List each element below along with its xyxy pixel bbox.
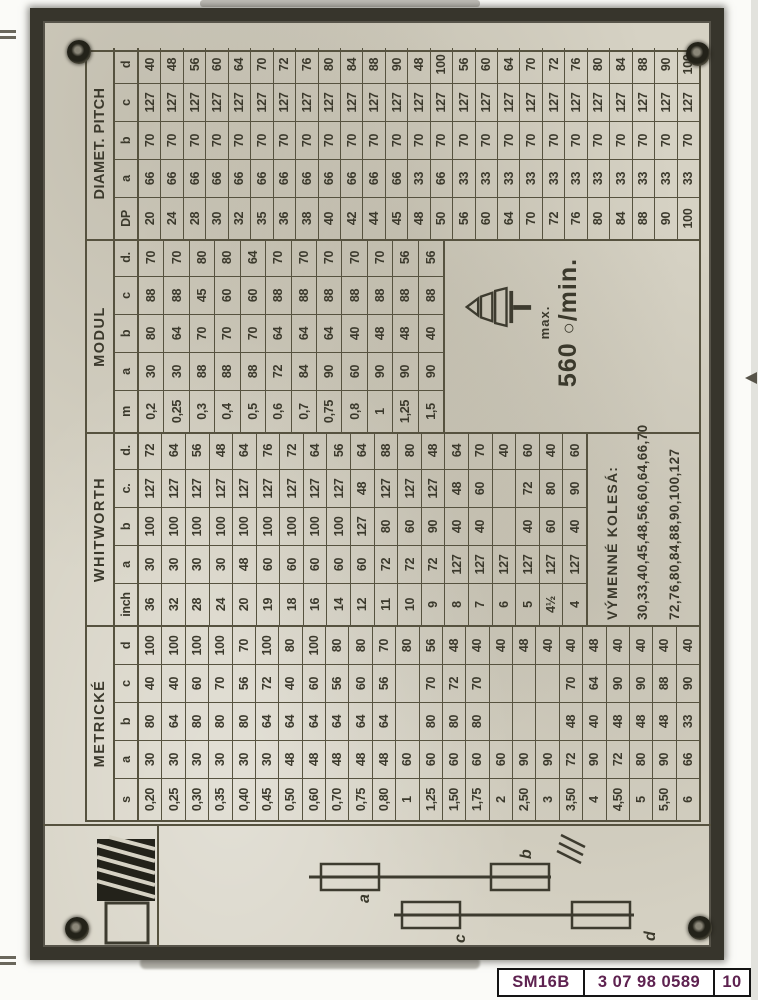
table-cell: 80 [396,627,418,665]
table-cell: 80 [398,432,421,470]
table-cell: 66 [341,160,362,198]
table-cell: 60 [241,277,265,315]
table-cell: 66 [184,160,205,198]
table-cell: 90 [563,470,586,508]
table-cell: 70 [431,122,452,160]
table-cell: 70 [453,122,474,160]
table-cell: 4½ [540,584,563,625]
table-cell: 127 [476,84,497,122]
table-cell: 48 [408,46,429,84]
table-cell: 80 [190,239,214,277]
table-cell: 66 [139,160,160,198]
table-row: 0,5048644080 [278,627,301,820]
table-cell: 42 [341,198,362,239]
max-speed-label: max. [537,241,552,404]
page-number: 10 [713,970,749,995]
table-cell: 127 [363,84,384,122]
table-cell: 1,5 [419,391,443,432]
table-row: 70337012770 [519,48,541,239]
table-cell: 0,60 [303,779,325,820]
table-cell: 0,80 [373,779,395,820]
table-cell: 70 [655,122,676,160]
table-row: 12601274864 [350,434,374,625]
table-cell: 70 [319,122,340,160]
table-cell: 70 [209,665,231,703]
table-cell: 88 [368,277,392,315]
table-row: 26040 [489,627,512,820]
table-cell: 33 [453,160,474,198]
table-cell: 70 [241,315,265,353]
catalog-id-box: SM16B 3 07 98 0589 10 [497,968,751,997]
table-row: 243010012748 [209,434,233,625]
table-cell: 48 [393,315,417,353]
max-speed-note: max. 560 ○/min. [445,241,583,432]
table-cell: 100 [304,508,327,546]
table-cell: 11 [375,584,398,625]
table-cell: 88 [139,277,163,315]
table-cell: 30 [210,546,233,584]
table-cell: 48 [445,470,468,508]
table-cell: 60 [342,353,366,391]
table-cell: 10 [398,584,421,625]
table-cell: 100 [280,508,303,546]
table-cell: 45 [190,277,214,315]
table-row: 1,5060807248 [442,627,465,820]
table-cell: 88 [164,277,188,315]
table-cell: 36 [139,584,162,625]
table-cell: 64 [241,239,265,277]
table-row: 35667012770 [250,48,272,239]
column-label: d [115,627,137,665]
table-cell: 60 [443,741,465,779]
column-label: c [115,277,137,315]
corner-screw-icon [65,917,89,941]
table-cell: 60 [327,546,350,584]
table-cell: 80 [630,741,652,779]
table-cell: 40 [139,665,161,703]
table-cell: 127 [431,84,452,122]
table-cell: 64 [304,432,327,470]
table-cell: 0,6 [266,391,290,432]
table-row: 9729012748 [421,434,445,625]
table-cell: 80 [186,703,208,741]
table-cell: 72 [139,432,162,470]
table-cell: 56 [453,46,474,84]
table-cell: 70 [266,239,290,277]
section-title: DIAMET. PITCH [87,48,115,239]
table-cell: 127 [540,546,563,584]
table-cell: 127 [257,470,280,508]
table-cell: 20 [139,198,160,239]
table-cell: 40 [540,432,563,470]
table-cell: 30 [162,741,184,779]
table-row: 186010012772 [279,434,303,625]
table-row: 3,5072487040 [559,627,582,820]
table-cell: 84 [292,353,316,391]
table-row: 0,7590648870 [316,241,341,432]
table-cell: 88 [633,46,654,84]
table-cell: 0,40 [233,779,255,820]
table-cell: 64 [279,703,301,741]
table-cell: 33 [498,160,519,198]
table-cell: 127 [229,84,250,122]
table-cell: 80 [420,703,442,741]
table-cell: 40 [342,315,366,353]
table-cell: 88 [342,277,366,315]
table-row: 72337012772 [542,48,564,239]
table-cell: 127 [351,508,374,546]
column-labels: sabcd [115,627,139,820]
table-cell: 1 [396,779,418,820]
table-cell: 64 [445,432,468,470]
table-cell: 14 [327,584,350,625]
table-cell: 64 [317,315,341,353]
thread-gear-table: METRICKÉ sabcd 0,203080401000,2530644010… [85,50,701,822]
table-cell: 64 [326,703,348,741]
table-cell: 48 [443,627,465,665]
table-cell: 100 [186,627,208,665]
table-row: 7127406070 [468,434,492,625]
table-cell: 0,7 [292,391,316,432]
table-cell: 127 [251,84,272,122]
table-cell: 1,25 [393,391,417,432]
table-cell: 70 [469,432,492,470]
table-row: 0,60486460100 [302,627,325,820]
column-labels: DPabcd [115,48,139,239]
table-cell: 60 [563,432,586,470]
table-cell: 56 [453,198,474,239]
table-cell: 60 [398,508,421,546]
table-cell: 80 [319,46,340,84]
table-cell: 48 [653,703,675,741]
table-cell: 48 [279,741,301,779]
table-cell [513,665,535,703]
table-cell: 33 [677,703,699,741]
gear-train-diagram: a b c d [159,826,709,947]
section-rows: 3630100127723230100127642830100127562430… [139,434,588,625]
table-cell: 64 [498,46,519,84]
table-row: 4½127608040 [539,434,563,625]
table-cell: 70 [476,122,497,160]
table-row: 323010012764 [161,434,185,625]
gear-change-table-plate: a b c d METRICKÉ sabcd 0,203080401000,25… [30,8,724,960]
table-cell: 88 [317,277,341,315]
table-cell: 3,50 [560,779,582,820]
table-cell: 72 [266,353,290,391]
table-row: 32667012764 [228,48,250,239]
section-metricke: METRICKÉ sabcd 0,203080401000,2530644010… [87,627,699,820]
table-cell: 127 [233,470,256,508]
table-cell: 66 [431,160,452,198]
table-row: 36667012772 [273,48,295,239]
table-cell: 60 [466,741,488,779]
table-cell: 70 [565,122,586,160]
table-cell [490,703,512,741]
table-row: 4127409060 [562,434,586,625]
table-cell: 80 [139,703,161,741]
table-cell: 64 [498,198,519,239]
table-row: 64337012764 [497,48,519,239]
table-cell: 72 [375,546,398,584]
column-label: c [115,665,137,703]
arrow-mark-icon [745,372,757,384]
table-row: 190488870 [367,241,392,432]
table-cell: 40 [653,627,675,665]
table-cell: 127 [655,84,676,122]
diagram-label-d: d [642,930,659,941]
table-cell [493,470,516,508]
table-cell: 76 [565,46,586,84]
table-cell: 66 [274,160,295,198]
table-cell: 16 [304,584,327,625]
table-cell: 70 [363,122,384,160]
section-diametral-pitch: DIAMET. PITCH DPabcd 2066701274024667012… [87,48,699,241]
table-cell: 33 [520,160,541,198]
table-cell: 72 [398,546,421,584]
table-row: 0,784648870 [291,241,316,432]
table-cell: 56 [420,627,442,665]
table-row: 490406448 [582,627,605,820]
table-row: 39040 [535,627,558,820]
table-row: 0,7048645680 [325,627,348,820]
table-cell: 90 [393,353,417,391]
table-row: 0,20308040100 [139,627,161,820]
table-cell: 0,70 [326,779,348,820]
table-cell: 0,75 [349,779,371,820]
table-row: 4,5072489040 [606,627,629,820]
table-row: 0,45306472100 [255,627,278,820]
table-cell: 64 [266,315,290,353]
table-cell: 0,4 [215,391,239,432]
table-row: 580489040 [629,627,652,820]
table-cell: 70 [190,315,214,353]
table-cell: 30 [164,353,188,391]
column-label: d. [115,239,137,277]
table-row: 166010012764 [303,434,327,625]
table-cell: 35 [251,198,272,239]
table-row: 84337012784 [609,48,631,239]
column-label: b [115,703,137,741]
table-cell: 60 [215,277,239,315]
table-cell: 60 [349,665,371,703]
table-cell: 1 [368,391,392,432]
table-cell: 80 [209,703,231,741]
revolution-symbol-icon: ○ [558,321,580,334]
table-cell: 18 [280,584,303,625]
section-title: METRICKÉ [87,627,115,820]
table-cell: 4,50 [607,779,629,820]
table-cell: 90 [386,46,407,84]
table-cell: 64 [373,703,395,741]
column-label: a [115,160,137,198]
table-cell: 70 [560,665,582,703]
table-row: 0,672648870 [265,241,290,432]
table-cell: 24 [161,198,182,239]
table-row: 5127407260 [515,434,539,625]
table-cell: 70 [164,239,188,277]
table-cell: 60 [280,546,303,584]
table-cell: 60 [303,665,325,703]
table-cell [493,508,516,546]
table-cell: 70 [498,122,519,160]
table-cell: 2 [490,779,512,820]
table-cell: 127 [610,84,631,122]
table-cell: 90 [422,508,445,546]
table-cell: 60 [206,46,227,84]
table-cell: 70 [610,122,631,160]
table-cell: 127 [493,546,516,584]
table-cell: 0,75 [317,391,341,432]
table-cell: 84 [610,46,631,84]
table-cell: 66 [319,160,340,198]
table-cell: 28 [186,584,209,625]
table-cell: 40 [419,315,443,353]
column-labels: inchabc.d. [115,434,139,625]
table-cell: 48 [161,46,182,84]
table-cell: 127 [408,84,429,122]
table-cell: 40 [516,508,539,546]
table-cell: 100 [256,627,278,665]
section-rows: 0,203080401000,253064401000,303080601000… [139,627,699,820]
table-cell [536,703,558,741]
table-cell: 70 [466,665,488,703]
table-cell: 30 [162,546,185,584]
table-cell: 0,2 [139,391,163,432]
table-cell: 64 [349,703,371,741]
table-cell: 72 [543,198,564,239]
table-cell: 100 [162,627,184,665]
table-cell: 60 [516,432,539,470]
table-row: 90337012790 [654,48,676,239]
table-cell: 127 [398,470,421,508]
table-cell: 127 [445,546,468,584]
table-cell: 1,75 [466,779,488,820]
table-cell: 66 [363,160,384,198]
table-row: 42667012784 [340,48,362,239]
table-cell [396,665,418,703]
table-cell: 72 [516,470,539,508]
table-row: 11728012788 [374,434,398,625]
table-cell: 30 [139,741,161,779]
table-cell: 127 [386,84,407,122]
table-cell: 33 [678,160,699,198]
table-cell: 127 [319,84,340,122]
table-cell: 64 [229,46,250,84]
table-cell: 0,5 [241,391,265,432]
table-cell: 90 [653,741,675,779]
table-cell: 90 [630,665,652,703]
table-cell: 90 [513,741,535,779]
table-cell: 100 [303,627,325,665]
table-cell: 48 [513,627,535,665]
table-cell: 70 [373,627,395,665]
table-cell: 64 [583,665,605,703]
table-cell: 70 [342,239,366,277]
table-row: 30667012760 [205,48,227,239]
table-cell: 60 [540,508,563,546]
column-label: DP [115,198,137,239]
section-whitworth: WHITWORTH inchabc.d. 3630100127723230100… [87,434,699,627]
table-cell: 45 [386,198,407,239]
table-row: 5,5090488840 [652,627,675,820]
table-cell: 127 [375,470,398,508]
table-cell: 64 [351,432,374,470]
table-cell: 48 [607,703,629,741]
table-cell: 64 [292,315,316,353]
table-cell: 64 [162,432,185,470]
table-cell: 88 [633,198,654,239]
table-cell: 50 [431,198,452,239]
table-cell: 56 [326,665,348,703]
scanned-page: a b c d METRICKÉ sabcd 0,203080401000,25… [0,0,758,1000]
table-row: 666339040 [676,627,699,820]
table-row: 48337012748 [407,48,429,239]
table-cell: 80 [375,508,398,546]
table-cell: 66 [386,160,407,198]
table-cell: 70 [215,315,239,353]
table-row: 0,8048645670 [372,627,395,820]
table-cell: 30 [206,198,227,239]
table-row: 0,588706064 [240,241,265,432]
table-row: 20667012740 [139,48,160,239]
column-label: a [115,546,137,584]
table-cell: 66 [161,160,182,198]
table-cell: 127 [162,470,185,508]
column-label: b [115,315,137,353]
registration-mark-icon [0,956,16,965]
table-cell: 80 [443,703,465,741]
column-labels: mabcd. [115,241,139,432]
table-cell: 0,20 [139,779,161,820]
table-cell: 40 [162,665,184,703]
table-cell: 88 [241,353,265,391]
table-cell: 84 [610,198,631,239]
table-cell: 127 [678,84,699,122]
table-row: 1,2560807056 [419,627,442,820]
table-cell: 72 [607,741,629,779]
table-cell: 70 [251,46,272,84]
table-cell: 127 [498,84,519,122]
diagram-label-a: a [356,894,373,903]
table-cell: 0,45 [256,779,278,820]
table-cell: 70 [317,239,341,277]
section-rows: 2066701274024667012748286670127563066701… [139,48,699,239]
table-cell: 90 [368,353,392,391]
table-cell: 40 [583,703,605,741]
table-cell: 127 [184,84,205,122]
column-label: b [115,508,137,546]
max-speed-value: 560 ○/min. [554,241,583,404]
section-title: MODUL [87,241,115,432]
table-cell: 44 [363,198,384,239]
table-cell: 80 [588,46,609,84]
table-cell: 90 [607,665,629,703]
table-cell [513,703,535,741]
table-cell: 56 [393,239,417,277]
table-cell: 70 [368,239,392,277]
table-cell: 40 [445,508,468,546]
table-cell: 80 [326,627,348,665]
table-row: 146010012756 [326,434,350,625]
diagram-label-c: c [452,934,469,943]
table-cell: 60 [490,741,512,779]
table-row: 45667012790 [385,48,407,239]
table-cell: 70 [206,122,227,160]
table-cell: 33 [655,160,676,198]
table-cell: 90 [317,353,341,391]
table-cell: 70 [184,122,205,160]
table-cell: 80 [279,627,301,665]
